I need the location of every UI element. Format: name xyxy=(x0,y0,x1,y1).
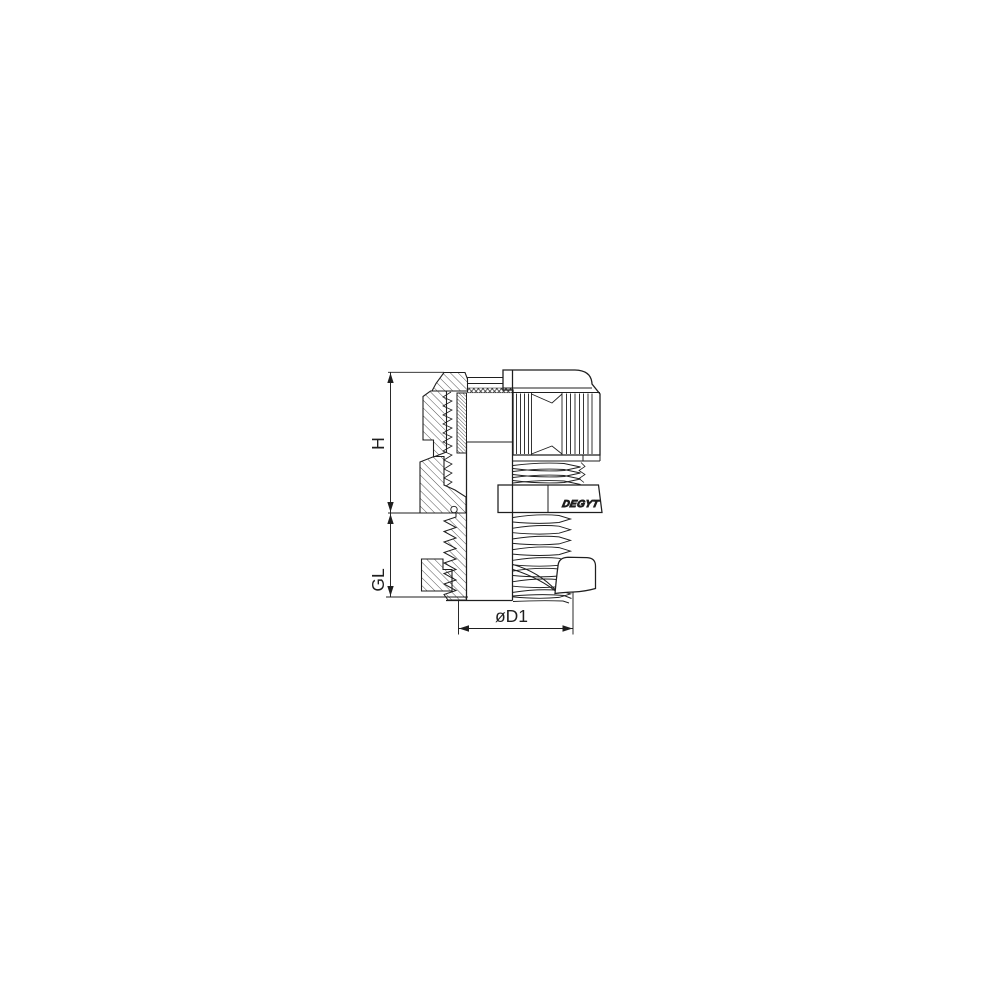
thread-runout-bottom xyxy=(513,595,572,603)
h-arrow-down xyxy=(387,502,393,512)
d1-arrow-right xyxy=(563,625,573,631)
cap-lip-section xyxy=(432,373,468,392)
locknut-corner-dome xyxy=(555,557,596,593)
serration-row xyxy=(468,388,513,393)
h-arrow-up xyxy=(387,373,393,383)
gl-label: GL xyxy=(368,568,388,592)
cap-nut xyxy=(503,370,600,461)
cap-outline xyxy=(503,370,600,455)
body-upper-section xyxy=(420,457,466,514)
outline-view: DEGYT xyxy=(446,370,602,603)
section-view xyxy=(420,373,468,601)
gl-arrow-up xyxy=(387,514,393,524)
hex-body: DEGYT xyxy=(498,485,602,513)
brand-logo-text: DEGYT xyxy=(561,499,600,510)
locknut-front xyxy=(513,557,596,593)
d1-arrow-left xyxy=(459,625,469,631)
seal-insert-section xyxy=(457,393,467,453)
dimension-d1: øD1 xyxy=(459,593,574,635)
h-label: H xyxy=(368,437,388,450)
oring-detail xyxy=(451,506,457,512)
cap-skirt-step xyxy=(513,455,600,461)
cable-gland-technical-drawing: DEGYT xyxy=(0,0,1000,1000)
d1-label: øD1 xyxy=(495,606,528,626)
drawing-canvas: DEGYT xyxy=(0,0,1000,1000)
gl-arrow-down xyxy=(387,586,393,596)
